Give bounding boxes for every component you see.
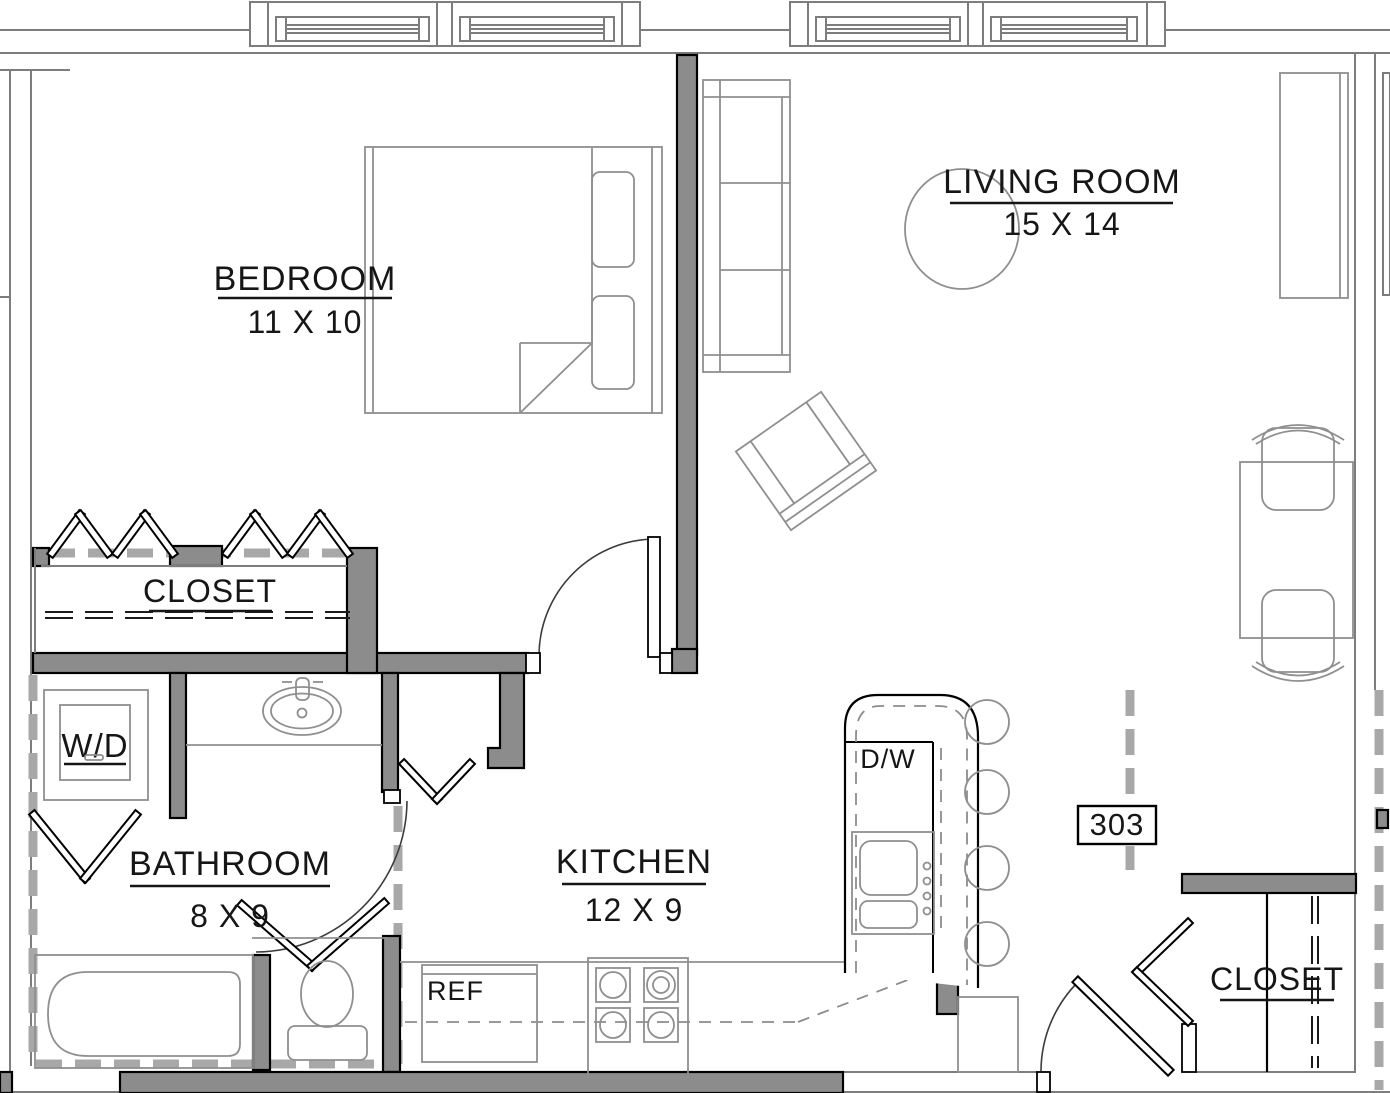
living-room-dims: 15 X 14: [1003, 206, 1120, 242]
hanger-icon: [52, 515, 108, 553]
sink: [263, 678, 341, 735]
sofa-outline: [703, 80, 790, 372]
hanger-icon: [117, 515, 173, 553]
unit-number: 303: [1090, 807, 1145, 842]
washer-dryer-label: W/D: [61, 727, 128, 764]
door-jamb: [1037, 1072, 1050, 1092]
tub: [48, 972, 240, 1056]
central-wall-foot: [672, 649, 697, 673]
kitchen-west-wall-stub: [488, 673, 524, 768]
window-bays: [250, 2, 1165, 46]
cabinet-dashed-diagonal: [798, 976, 918, 1022]
closet-door-chevron: [1137, 923, 1188, 1021]
pillow: [592, 172, 634, 267]
washer-dryer: W/D: [44, 690, 148, 800]
kitchen-peninsula: D/W: [845, 695, 1018, 1072]
toilet-tank: [288, 1026, 367, 1060]
bookshelf: [1280, 73, 1348, 298]
floor-plan: BEDROOM 11 X 10: [0, 0, 1390, 1093]
entry: 303: [1037, 806, 1196, 1092]
burner: [647, 971, 675, 999]
burner-frame: [644, 968, 678, 1002]
living-room-label: LIVING ROOM: [943, 163, 1181, 201]
bottom-left-stub: [0, 1072, 12, 1093]
entry-closet-label: CLOSET: [1210, 961, 1344, 997]
burner-frame: [596, 968, 630, 1002]
door-jamb: [660, 653, 672, 673]
bathtub: [35, 955, 253, 1068]
entry-door-leaf: [1078, 982, 1168, 1070]
burner: [600, 1012, 626, 1038]
entry-closet-wall: [1182, 874, 1356, 893]
closet-bath-wall: [33, 653, 528, 673]
sofa: [703, 80, 790, 372]
bed-outline: [365, 147, 662, 413]
door-leaf: [648, 537, 660, 657]
kitchen-label: KITCHEN: [556, 843, 712, 881]
chair: [1262, 428, 1334, 510]
floor-plan-page: BEDROOM 11 X 10: [0, 0, 1390, 1093]
burner: [600, 972, 626, 998]
door-jamb: [1182, 1024, 1196, 1072]
armchair-armrest: [751, 441, 795, 503]
chair-back-arc: [1256, 662, 1340, 676]
vanity-right-wall: [382, 673, 398, 792]
vanity-left-wall: [170, 673, 186, 818]
armchair-armrest: [806, 402, 850, 464]
chair: [1262, 590, 1334, 672]
door-jamb: [526, 653, 540, 673]
door-swing-arc: [1041, 982, 1078, 1071]
bedroom: BEDROOM 11 X 10: [214, 147, 662, 413]
bathroom-label: BATHROOM: [129, 845, 331, 883]
burner-frame: [644, 1008, 678, 1042]
pillow: [592, 296, 634, 389]
bed-fold-diagonal: [520, 343, 592, 413]
sink-faucet: [296, 678, 309, 700]
right-wall-tick: [1377, 810, 1388, 828]
hanger-icon: [227, 515, 283, 553]
burner-inner: [653, 977, 669, 993]
hanger-icon: [292, 515, 348, 553]
stove: [588, 958, 688, 1078]
end-cabinet: [958, 997, 1018, 1072]
closet-label: CLOSET: [143, 573, 277, 609]
bathroom-door-chevron: [404, 764, 470, 799]
living-room: LIVING ROOM 15 X 14: [703, 73, 1353, 681]
toilet-bowl: [301, 961, 353, 1027]
closet-mid-post: [170, 546, 222, 566]
closet-left: CLOSET: [35, 515, 350, 653]
kitchen-dims: 12 X 9: [585, 892, 684, 928]
closet-right-wall: [347, 548, 377, 673]
central-wall: [677, 55, 697, 655]
bedroom-dims: 11 X 10: [248, 304, 363, 340]
door-jamb: [384, 790, 400, 803]
armchair-back-line: [779, 454, 864, 514]
bed: [365, 147, 662, 413]
sink-drain: [298, 709, 307, 718]
sink-basin-inner: [271, 694, 333, 729]
bedroom-label: BEDROOM: [214, 260, 397, 298]
entry-closet: CLOSET: [1137, 893, 1344, 1072]
refrigerator: REF: [422, 965, 537, 1062]
refrigerator-label: REF: [427, 976, 484, 1006]
bottom-wall-bar: [120, 1072, 843, 1093]
toilet-right-wall: [383, 936, 400, 1072]
chair-back-arc: [1256, 431, 1340, 445]
armchair-back-line: [785, 462, 870, 522]
bedroom-door: [526, 537, 672, 673]
wd-door-chevron: [34, 815, 136, 878]
door-swing-arc: [539, 539, 656, 655]
dishwasher-label: D/W: [860, 744, 915, 774]
dining-set: [1240, 425, 1353, 681]
bathroom-dims: 8 X 9: [190, 898, 270, 934]
burner: [648, 1012, 674, 1038]
table: [1240, 462, 1353, 638]
armchair: [736, 392, 876, 530]
tub-toilet-wall: [253, 955, 270, 1070]
adjacent-unit-sliver: [1383, 73, 1390, 295]
burner-frame: [596, 1008, 630, 1042]
